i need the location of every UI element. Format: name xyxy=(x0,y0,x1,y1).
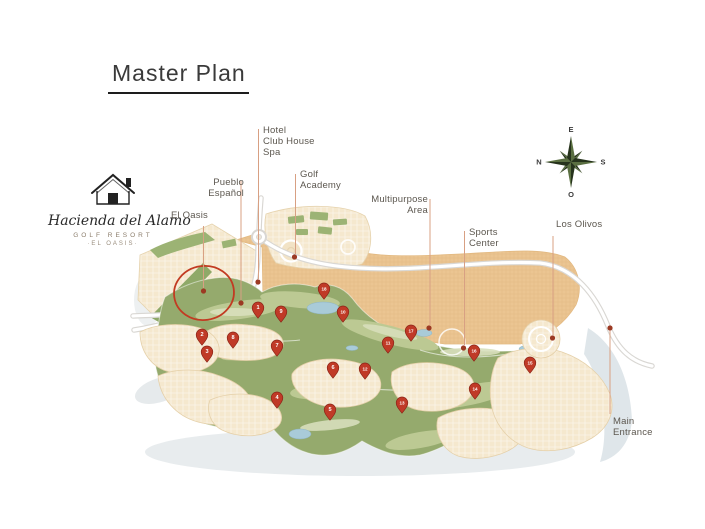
pin-number: 5 xyxy=(328,407,331,413)
resort-map: 123456789101112131415161718 xyxy=(0,0,705,529)
master-plan-page: 123456789101112131415161718 Master Plan … xyxy=(0,0,705,529)
leader-dot-hotel-club-house-spa xyxy=(255,279,260,284)
label-golf-academy: GolfAcademy xyxy=(300,169,360,191)
logo-tagline: ·EL OASIS· xyxy=(48,241,178,247)
leader-dot-main-entrance xyxy=(607,325,612,330)
leader-dot-el-oasis xyxy=(201,288,206,293)
compass-rose: E S O N xyxy=(531,122,611,207)
pin-number: 17 xyxy=(408,329,414,334)
compass-west: O xyxy=(568,190,574,199)
leader-dot-golf-academy xyxy=(292,254,297,259)
leader-dot-pueblo-espanol xyxy=(238,300,243,305)
title-underline xyxy=(108,92,249,94)
pin-number: 6 xyxy=(331,365,334,371)
leader-dot-sports-center xyxy=(461,345,466,350)
pin-number: 1 xyxy=(256,305,259,311)
label-sports-center: SportsCenter xyxy=(469,227,524,249)
compass-south: S xyxy=(600,158,605,167)
pin-number: 10 xyxy=(340,310,346,315)
compass-north: N xyxy=(536,158,541,167)
pin-number: 8 xyxy=(231,335,234,341)
house-icon xyxy=(48,172,178,206)
pin-number: 15 xyxy=(527,361,533,366)
pin-number: 18 xyxy=(321,287,327,292)
label-multipurpose-area: MultipurposeArea xyxy=(352,194,428,216)
logo-brand: Hacienda del Alamo xyxy=(48,213,178,229)
label-pueblo-espanol: PuebloEspañol xyxy=(194,177,244,199)
label-el-oasis: El Oasis xyxy=(171,210,221,221)
pin-number: 16 xyxy=(471,349,477,354)
pin-number: 13 xyxy=(399,401,405,406)
resort-logo: Hacienda del Alamo GOLF RESORT ·EL OASIS… xyxy=(48,172,178,247)
pin-number: 7 xyxy=(275,343,278,349)
leader-dot-multipurpose-area xyxy=(426,325,431,330)
pin-number: 2 xyxy=(200,332,203,338)
pin-number: 14 xyxy=(472,387,478,392)
label-main-entrance: MainEntrance xyxy=(613,416,673,438)
pin-number: 11 xyxy=(386,341,391,346)
label-los-olivos: Los Olivos xyxy=(556,219,616,230)
leader-dot-los-olivos xyxy=(550,335,555,340)
page-title: Master Plan xyxy=(112,60,246,87)
pin-number: 3 xyxy=(205,349,208,355)
pin-number: 9 xyxy=(279,309,282,315)
logo-subtitle: GOLF RESORT xyxy=(48,232,178,239)
compass-star xyxy=(545,136,597,188)
pin-number: 12 xyxy=(362,367,368,372)
compass-east: E xyxy=(568,125,573,134)
label-hotel-club-house-spa: HotelClub HouseSpa xyxy=(263,125,325,158)
